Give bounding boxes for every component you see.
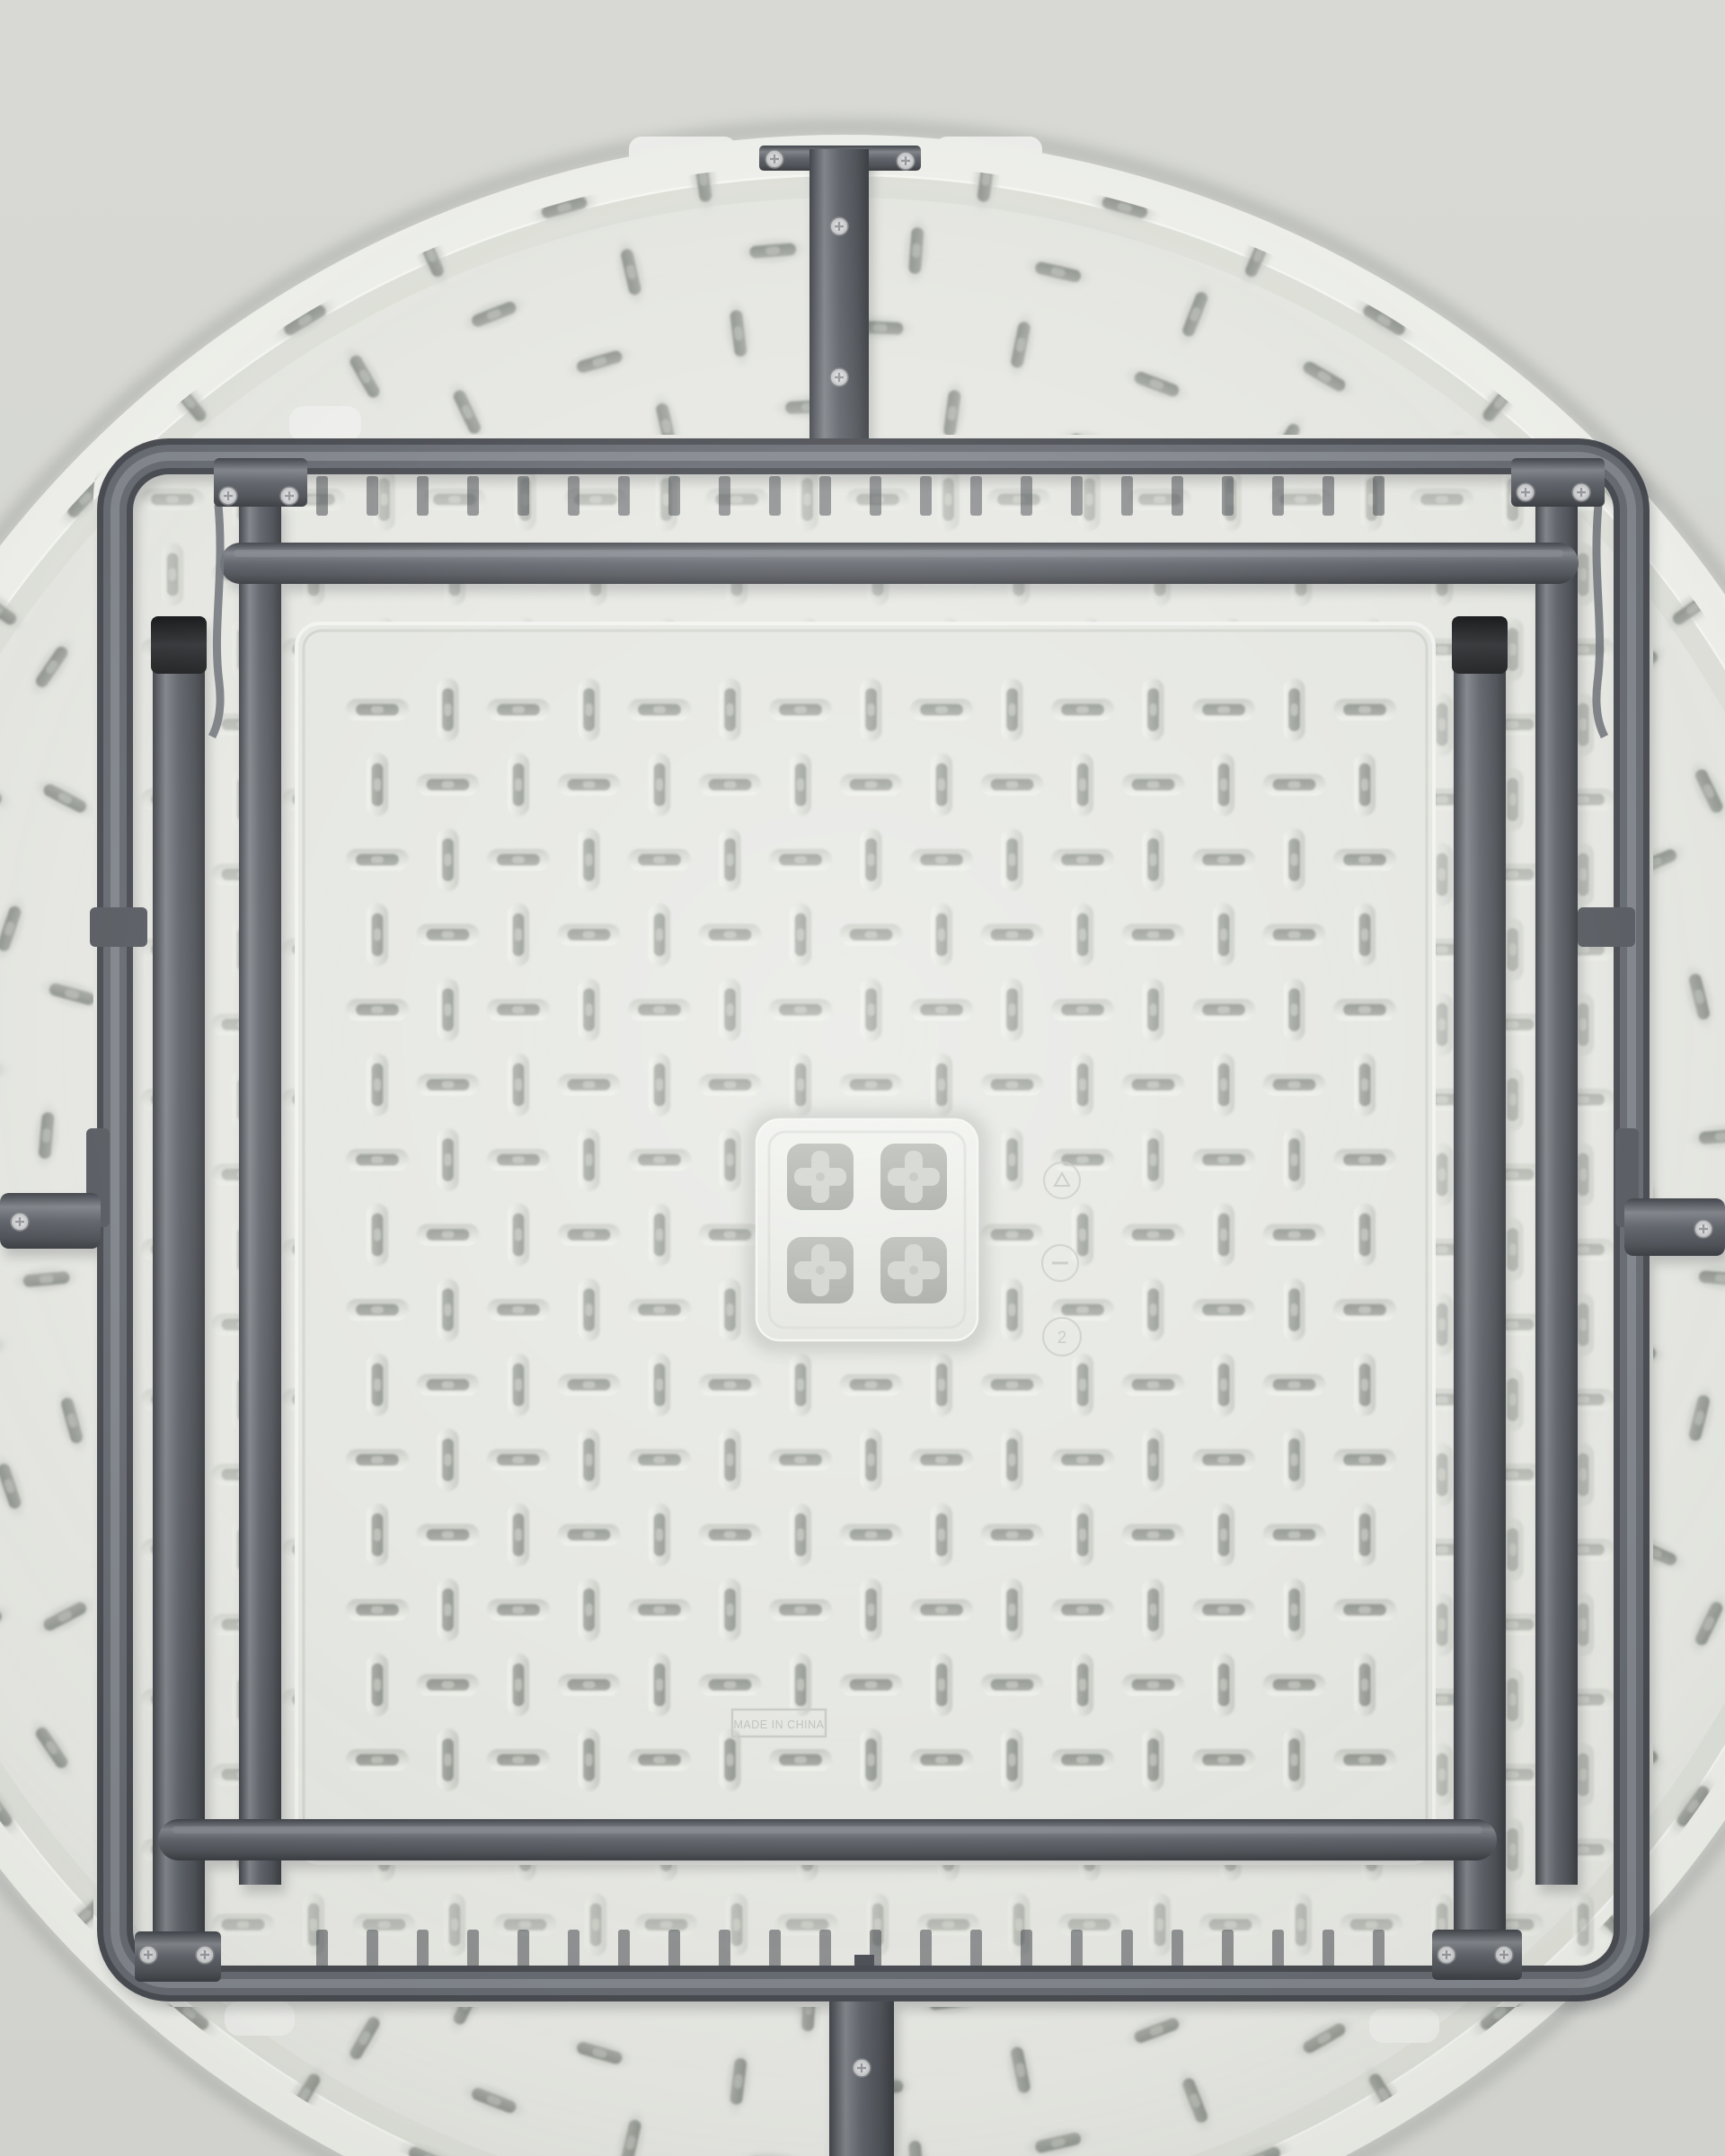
texture-capsule bbox=[1002, 1578, 1023, 1641]
texture-capsule bbox=[1072, 1054, 1093, 1117]
texture-capsule bbox=[1192, 1149, 1255, 1171]
texture-capsule bbox=[438, 828, 459, 891]
texture-capsule bbox=[861, 678, 882, 741]
texture-capsule bbox=[487, 999, 550, 1021]
texture-capsule bbox=[346, 849, 409, 870]
texture-capsule bbox=[628, 1599, 691, 1621]
texture-capsule bbox=[508, 754, 529, 817]
texture-capsule bbox=[1333, 1449, 1396, 1471]
texture-capsule bbox=[487, 1749, 550, 1771]
leg-tube-left bbox=[239, 501, 281, 1885]
tick-slot bbox=[1322, 1930, 1334, 1969]
texture-capsule bbox=[558, 1374, 621, 1396]
texture-capsule bbox=[417, 1524, 480, 1546]
top-crossbar bbox=[220, 543, 1579, 584]
texture-capsule bbox=[579, 1578, 600, 1641]
texture-capsule bbox=[1263, 1224, 1326, 1246]
texture-capsule bbox=[1333, 699, 1396, 720]
tick-slot bbox=[920, 1930, 932, 1969]
bottom-crossbar-highlight bbox=[172, 1826, 1482, 1833]
texture-capsule bbox=[981, 1674, 1044, 1696]
texture-capsule bbox=[1290, 1894, 1312, 1957]
texture-capsule bbox=[649, 1504, 670, 1567]
texture-capsule bbox=[720, 828, 741, 891]
texture-capsule bbox=[981, 1524, 1044, 1546]
texture-capsule bbox=[367, 1054, 388, 1117]
texture-capsule bbox=[444, 1894, 465, 1957]
texture-capsule bbox=[1192, 1299, 1255, 1321]
texture-capsule bbox=[628, 1749, 691, 1771]
texture-capsule bbox=[790, 1354, 811, 1417]
texture-capsule bbox=[579, 1128, 600, 1191]
texture-capsule bbox=[1263, 774, 1326, 796]
texture-capsule bbox=[628, 849, 691, 870]
texture-capsule bbox=[1284, 678, 1305, 741]
photo-canvas: 2 MADE IN CHINA bbox=[0, 0, 1725, 2156]
texture-capsule bbox=[346, 699, 409, 720]
texture-capsule bbox=[1072, 1504, 1093, 1567]
knuckle bbox=[1578, 907, 1635, 947]
texture-capsule bbox=[1192, 1599, 1255, 1621]
texture-capsule bbox=[579, 1728, 600, 1791]
texture-capsule bbox=[649, 1054, 670, 1117]
texture-capsule bbox=[1284, 828, 1305, 891]
texture-capsule bbox=[1263, 1374, 1326, 1396]
texture-capsule bbox=[931, 754, 952, 817]
texture-capsule bbox=[1263, 1074, 1326, 1096]
texture-capsule bbox=[790, 1054, 811, 1117]
texture-capsule bbox=[699, 1074, 762, 1096]
texture-capsule bbox=[1333, 1149, 1396, 1171]
texture-capsule bbox=[699, 924, 762, 946]
texture-capsule bbox=[346, 1299, 409, 1321]
edge-pad bbox=[934, 137, 1042, 167]
tick-slot bbox=[1071, 1930, 1083, 1969]
texture-capsule bbox=[1284, 1278, 1305, 1341]
texture-capsule bbox=[1143, 1428, 1164, 1491]
texture-capsule bbox=[840, 924, 903, 946]
texture-capsule bbox=[579, 828, 600, 891]
texture-capsule bbox=[1213, 904, 1234, 967]
texture-capsule bbox=[367, 754, 388, 817]
texture-capsule bbox=[1213, 1354, 1234, 1417]
texture-capsule bbox=[1051, 699, 1114, 720]
texture-capsule bbox=[141, 489, 204, 510]
texture-capsule bbox=[1143, 1578, 1164, 1641]
texture-capsule bbox=[367, 1354, 388, 1417]
screw bbox=[1694, 1220, 1712, 1238]
texture-capsule bbox=[1072, 1204, 1093, 1267]
texture-capsule bbox=[720, 978, 741, 1041]
texture-capsule bbox=[699, 1674, 762, 1696]
texture-capsule bbox=[628, 699, 691, 720]
texture-capsule bbox=[1263, 924, 1326, 946]
texture-capsule bbox=[1051, 999, 1114, 1021]
texture-capsule bbox=[438, 678, 459, 741]
tick-slot bbox=[970, 1930, 982, 1969]
texture-capsule bbox=[649, 754, 670, 817]
texture-capsule bbox=[861, 1578, 882, 1641]
tick-slot bbox=[769, 1930, 781, 1969]
texture-capsule bbox=[840, 774, 903, 796]
tick-slot bbox=[517, 1930, 529, 1969]
texture-capsule bbox=[1058, 1914, 1121, 1936]
texture-capsule bbox=[1192, 699, 1255, 720]
texture-capsule bbox=[790, 1504, 811, 1567]
texture-capsule bbox=[720, 1578, 741, 1641]
tick-slot bbox=[367, 1930, 378, 1969]
texture-capsule bbox=[1354, 1504, 1376, 1567]
texture-capsule bbox=[628, 1449, 691, 1471]
texture-capsule bbox=[1143, 678, 1164, 741]
texture-capsule bbox=[1002, 1128, 1023, 1191]
screw bbox=[1517, 483, 1535, 501]
texture-capsule bbox=[769, 999, 832, 1021]
tick-slot bbox=[668, 1930, 680, 1969]
texture-capsule bbox=[585, 1894, 606, 1957]
screw bbox=[1495, 1946, 1513, 1964]
texture-capsule bbox=[367, 1504, 388, 1567]
texture-capsule bbox=[910, 999, 973, 1021]
texture-capsule bbox=[1333, 999, 1396, 1021]
texture-capsule bbox=[769, 699, 832, 720]
tick-slot bbox=[1272, 1930, 1284, 1969]
texture-capsule bbox=[1263, 1524, 1326, 1546]
texture-capsule bbox=[1340, 1914, 1403, 1936]
texture-capsule bbox=[346, 1149, 409, 1171]
texture-capsule bbox=[910, 1449, 973, 1471]
texture-capsule bbox=[910, 849, 973, 870]
texture-capsule bbox=[1002, 828, 1023, 891]
texture-capsule bbox=[1411, 489, 1473, 510]
texture-capsule bbox=[417, 1374, 480, 1396]
texture-capsule bbox=[1051, 849, 1114, 870]
texture-capsule bbox=[487, 1449, 550, 1471]
texture-capsule bbox=[1572, 1894, 1594, 1957]
texture-capsule bbox=[1284, 1728, 1305, 1791]
screw bbox=[1572, 483, 1590, 501]
texture-capsule bbox=[910, 1749, 973, 1771]
texture-capsule bbox=[1333, 1599, 1396, 1621]
texture-capsule bbox=[1192, 999, 1255, 1021]
texture-capsule bbox=[1002, 1278, 1023, 1341]
texture-capsule bbox=[1192, 1749, 1255, 1771]
tick-slot bbox=[1373, 1930, 1384, 1969]
texture-capsule bbox=[1002, 678, 1023, 741]
texture-capsule bbox=[861, 828, 882, 891]
tick-slot bbox=[719, 1930, 730, 1969]
tick-slot bbox=[467, 1930, 479, 1969]
texture-capsule bbox=[579, 678, 600, 741]
texture-capsule bbox=[367, 1204, 388, 1267]
texture-capsule bbox=[1354, 1354, 1376, 1417]
texture-capsule bbox=[931, 1354, 952, 1417]
texture-capsule bbox=[981, 1374, 1044, 1396]
texture-capsule bbox=[353, 1914, 416, 1936]
texture-capsule bbox=[769, 1749, 832, 1771]
texture-capsule bbox=[438, 978, 459, 1041]
texture-capsule bbox=[1122, 1524, 1185, 1546]
screw bbox=[765, 150, 783, 168]
tick-slot bbox=[1172, 1930, 1183, 1969]
texture-capsule bbox=[769, 1599, 832, 1621]
texture-capsule bbox=[1122, 924, 1185, 946]
texture-capsule bbox=[579, 1428, 600, 1491]
tick-slot bbox=[417, 1930, 429, 1969]
tick-slot bbox=[618, 1930, 630, 1969]
texture-capsule bbox=[931, 1654, 952, 1717]
texture-capsule bbox=[417, 1224, 480, 1246]
texture-capsule bbox=[649, 1654, 670, 1717]
screw bbox=[139, 1946, 157, 1964]
texture-capsule bbox=[1122, 1224, 1185, 1246]
texture-capsule bbox=[1263, 1674, 1326, 1696]
texture-capsule bbox=[367, 904, 388, 967]
screw bbox=[196, 1946, 214, 1964]
bottom-crossbar bbox=[158, 1819, 1497, 1860]
tick-slot bbox=[316, 1930, 328, 1969]
texture-capsule bbox=[508, 1354, 529, 1417]
texture-capsule bbox=[840, 1524, 903, 1546]
texture-capsule bbox=[720, 1128, 741, 1191]
texture-capsule bbox=[1284, 1128, 1305, 1191]
texture-capsule bbox=[1192, 849, 1255, 870]
texture-capsule bbox=[1072, 1654, 1093, 1717]
texture-capsule bbox=[417, 924, 480, 946]
texture-capsule bbox=[1354, 904, 1376, 967]
texture-capsule bbox=[1284, 978, 1305, 1041]
texture-capsule bbox=[558, 1074, 621, 1096]
texture-capsule bbox=[649, 904, 670, 967]
texture-capsule bbox=[438, 1128, 459, 1191]
texture-capsule bbox=[720, 678, 741, 741]
texture-capsule bbox=[1284, 1578, 1305, 1641]
north-strap bbox=[809, 149, 869, 458]
tick-slot bbox=[819, 1930, 831, 1969]
tick-slot bbox=[1222, 1930, 1234, 1969]
texture-capsule bbox=[438, 1728, 459, 1791]
texture-capsule bbox=[1284, 1428, 1305, 1491]
texture-capsule bbox=[1051, 1449, 1114, 1471]
texture-capsule bbox=[931, 904, 952, 967]
texture-capsule bbox=[840, 1674, 903, 1696]
tick-slot bbox=[1121, 1930, 1133, 1969]
texture-capsule bbox=[769, 849, 832, 870]
texture-capsule bbox=[1192, 1449, 1255, 1471]
screw bbox=[219, 487, 237, 505]
texture-capsule bbox=[635, 1914, 698, 1936]
texture-capsule bbox=[1354, 1054, 1376, 1117]
texture-capsule bbox=[1051, 1749, 1114, 1771]
texture-capsule bbox=[346, 1599, 409, 1621]
made-in-text: MADE IN CHINA bbox=[734, 1719, 825, 1731]
texture-capsule bbox=[1002, 1728, 1023, 1791]
texture-capsule bbox=[699, 1524, 762, 1546]
texture-capsule bbox=[1213, 754, 1234, 817]
edge-pad bbox=[289, 406, 361, 442]
texture-capsule bbox=[1072, 754, 1093, 817]
texture-capsule bbox=[1122, 1074, 1185, 1096]
texture-capsule bbox=[487, 699, 550, 720]
texture-capsule bbox=[417, 774, 480, 796]
texture-capsule bbox=[346, 1449, 409, 1471]
texture-capsule bbox=[1333, 1299, 1396, 1321]
texture-capsule bbox=[417, 1074, 480, 1096]
texture-capsule bbox=[346, 999, 409, 1021]
texture-capsule bbox=[487, 1599, 550, 1621]
leg-end-cap-right bbox=[1452, 616, 1508, 674]
texture-capsule bbox=[508, 1654, 529, 1717]
tick-slot bbox=[1021, 1930, 1032, 1969]
texture-capsule bbox=[628, 1299, 691, 1321]
texture-capsule bbox=[1354, 1654, 1376, 1717]
texture-capsule bbox=[981, 924, 1044, 946]
texture-capsule bbox=[1213, 1054, 1234, 1117]
screw bbox=[830, 217, 848, 235]
texture-capsule bbox=[508, 1054, 529, 1117]
screw bbox=[830, 368, 848, 386]
texture-capsule bbox=[1333, 1749, 1396, 1771]
screw bbox=[280, 487, 298, 505]
texture-capsule bbox=[981, 774, 1044, 796]
texture-capsule bbox=[1122, 1674, 1185, 1696]
screw bbox=[1437, 1946, 1455, 1964]
texture-capsule bbox=[1143, 1278, 1164, 1341]
texture-capsule bbox=[769, 1449, 832, 1471]
texture-capsule bbox=[1072, 1354, 1093, 1417]
texture-capsule bbox=[720, 1428, 741, 1491]
texture-capsule bbox=[861, 1728, 882, 1791]
texture-capsule bbox=[981, 1224, 1044, 1246]
texture-capsule bbox=[508, 1204, 529, 1267]
texture-capsule bbox=[1354, 1204, 1376, 1267]
texture-capsule bbox=[212, 1914, 275, 1936]
texture-capsule bbox=[981, 1074, 1044, 1096]
texture-capsule bbox=[417, 1674, 480, 1696]
texture-capsule bbox=[1143, 978, 1164, 1041]
edge-pad bbox=[629, 137, 737, 167]
texture-capsule bbox=[162, 543, 183, 606]
texture-capsule bbox=[1213, 1654, 1234, 1717]
texture-capsule bbox=[438, 1278, 459, 1341]
texture-capsule bbox=[910, 1599, 973, 1621]
texture-capsule bbox=[720, 1728, 741, 1791]
texture-capsule bbox=[1072, 904, 1093, 967]
centre-hub-plate bbox=[746, 1110, 988, 1353]
screw bbox=[853, 2059, 871, 2077]
edge-pad bbox=[1369, 2009, 1439, 2043]
texture-capsule bbox=[931, 1504, 952, 1567]
texture-capsule bbox=[558, 774, 621, 796]
texture-capsule bbox=[438, 1428, 459, 1491]
texture-capsule bbox=[1051, 1149, 1114, 1171]
texture-capsule bbox=[558, 1674, 621, 1696]
texture-capsule bbox=[861, 1428, 882, 1491]
texture-capsule bbox=[579, 1278, 600, 1341]
texture-capsule bbox=[1002, 978, 1023, 1041]
texture-capsule bbox=[579, 978, 600, 1041]
screw bbox=[11, 1213, 29, 1231]
texture-capsule bbox=[1143, 1728, 1164, 1791]
texture-capsule bbox=[699, 774, 762, 796]
texture-capsule bbox=[1122, 1374, 1185, 1396]
texture-capsule bbox=[720, 1278, 741, 1341]
texture-capsule bbox=[558, 924, 621, 946]
texture-capsule bbox=[558, 1224, 621, 1246]
top-crossbar-highlight bbox=[234, 550, 1563, 557]
texture-capsule bbox=[487, 1149, 550, 1171]
leg-end-cap-left bbox=[151, 616, 207, 674]
texture-capsule bbox=[1143, 1128, 1164, 1191]
texture-capsule bbox=[790, 904, 811, 967]
screw bbox=[897, 152, 915, 170]
texture-capsule bbox=[346, 1749, 409, 1771]
texture-capsule bbox=[699, 1374, 762, 1396]
texture-capsule bbox=[1333, 849, 1396, 870]
texture-capsule bbox=[649, 1354, 670, 1417]
texture-capsule bbox=[840, 1074, 903, 1096]
leg-tube-right bbox=[1535, 501, 1578, 1885]
texture-capsule bbox=[508, 1504, 529, 1567]
texture-capsule bbox=[1122, 774, 1185, 796]
texture-capsule bbox=[649, 1204, 670, 1267]
texture-capsule bbox=[1213, 1504, 1234, 1567]
texture-capsule bbox=[1213, 1204, 1234, 1267]
texture-capsule bbox=[628, 999, 691, 1021]
knuckle bbox=[90, 907, 147, 947]
texture-capsule bbox=[931, 1054, 952, 1117]
texture-capsule bbox=[705, 489, 768, 510]
texture-capsule bbox=[1354, 754, 1376, 817]
product-photo-round-folding-table-underside: 2 MADE IN CHINA bbox=[0, 0, 1725, 2156]
texture-capsule bbox=[487, 1299, 550, 1321]
resin-code-number: 2 bbox=[1057, 1329, 1067, 1347]
texture-capsule bbox=[790, 1654, 811, 1717]
texture-capsule bbox=[628, 1149, 691, 1171]
texture-capsule bbox=[558, 1524, 621, 1546]
texture-capsule bbox=[508, 904, 529, 967]
texture-capsule bbox=[987, 489, 1050, 510]
texture-capsule bbox=[910, 699, 973, 720]
texture-capsule bbox=[367, 1654, 388, 1717]
texture-capsule bbox=[840, 1374, 903, 1396]
texture-capsule bbox=[1002, 1428, 1023, 1491]
texture-capsule bbox=[1143, 828, 1164, 891]
leg-tube-capped-right bbox=[1454, 618, 1506, 1942]
texture-capsule bbox=[1051, 1599, 1114, 1621]
tick-slot bbox=[568, 1930, 579, 1969]
texture-capsule bbox=[487, 849, 550, 870]
texture-capsule bbox=[861, 978, 882, 1041]
texture-capsule bbox=[1149, 1894, 1171, 1957]
leg-tube-capped-left bbox=[153, 618, 205, 1942]
texture-capsule bbox=[790, 754, 811, 817]
texture-capsule bbox=[438, 1578, 459, 1641]
